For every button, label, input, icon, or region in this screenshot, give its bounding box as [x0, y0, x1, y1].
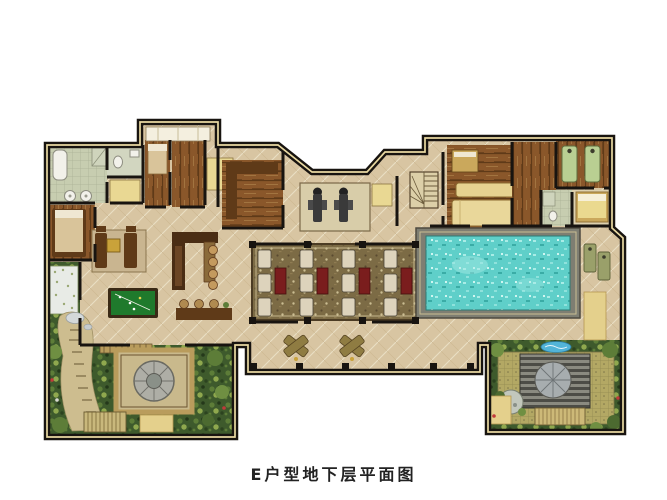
utility-room — [110, 180, 140, 203]
shower — [543, 192, 555, 206]
garden-mat — [140, 415, 173, 432]
pool-water — [426, 236, 570, 310]
toilet-room — [107, 145, 143, 177]
billiards-table — [108, 288, 158, 318]
sofa — [95, 233, 107, 268]
home-theater — [252, 244, 418, 320]
gym-mat — [372, 184, 392, 206]
garden-rock-small — [84, 324, 92, 330]
swimming-pool — [416, 228, 580, 318]
garden-mat-right — [489, 396, 511, 424]
guest-bathroom — [541, 190, 572, 226]
toilet — [114, 156, 123, 168]
flower-bed — [50, 266, 78, 314]
lounge-sofa-set — [92, 226, 146, 272]
garden-bench — [535, 408, 585, 425]
bed-pillow — [55, 210, 83, 218]
massage-room — [556, 140, 612, 188]
floor-plan-drawing — [0, 0, 667, 500]
sunken-garden-right — [488, 340, 623, 434]
console-bench — [176, 308, 232, 320]
guest-bedroom — [572, 190, 612, 226]
storage-room — [222, 160, 283, 228]
bed-mattress — [55, 214, 83, 252]
bathroom — [48, 145, 107, 203]
floor-plan-image: E户型地下层平面图 — [0, 0, 667, 500]
plan-caption: E户型地下层平面图 — [0, 461, 667, 485]
pool-mat — [584, 292, 606, 340]
bathtub — [53, 150, 67, 180]
toilet — [549, 211, 557, 221]
sofa — [124, 233, 137, 268]
coffee-table — [107, 239, 120, 252]
staircase — [410, 172, 438, 208]
bedroom-left — [49, 205, 95, 260]
fountain-pavilion — [116, 350, 192, 412]
washbasin — [130, 150, 139, 157]
